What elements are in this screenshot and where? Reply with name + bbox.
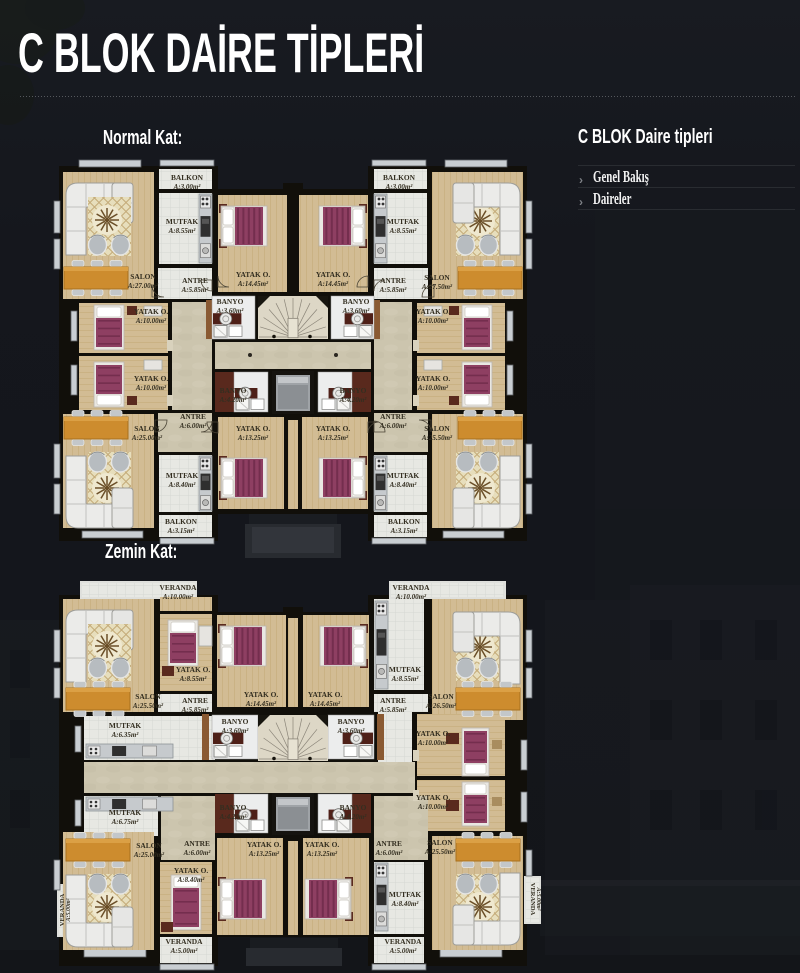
svg-text:A:6.00m²: A:6.00m² (179, 422, 208, 430)
svg-text:A:6.00m²: A:6.00m² (379, 422, 408, 430)
svg-text:MUTFAK: MUTFAK (389, 890, 422, 899)
svg-text:A:3.00m²: A:3.00m² (173, 183, 202, 191)
svg-text:A:3.00m²: A:3.00m² (385, 183, 414, 191)
svg-text:MUTFAK: MUTFAK (389, 665, 422, 674)
svg-text:A:14.45m²: A:14.45m² (237, 280, 269, 288)
svg-text:BANYO: BANYO (340, 386, 367, 395)
svg-text:A:25.00m²: A:25.00m² (131, 434, 163, 442)
svg-text:A:6.35m²: A:6.35m² (111, 731, 140, 739)
svg-text:A:8.55m²: A:8.55m² (168, 227, 197, 235)
svg-text:A:4.20m²: A:4.20m² (339, 396, 368, 404)
svg-text:A:26.50m²: A:26.50m² (425, 702, 457, 710)
svg-text:YATAK O.: YATAK O. (176, 665, 211, 674)
svg-text:A:5.85m²: A:5.85m² (379, 286, 408, 294)
svg-text:YATAK O.: YATAK O. (416, 793, 451, 802)
svg-text:A:5.85m²: A:5.85m² (181, 706, 210, 714)
svg-text:A:6.00m²: A:6.00m² (183, 849, 212, 857)
svg-text:YATAK O.: YATAK O. (416, 307, 451, 316)
svg-text:A:3.15m²: A:3.15m² (167, 527, 196, 535)
svg-text:A:10.00m²: A:10.00m² (417, 803, 449, 811)
svg-text:YATAK O.: YATAK O. (416, 374, 451, 383)
svg-text:A:3.60m²: A:3.60m² (342, 307, 371, 315)
svg-text:BANYO: BANYO (220, 803, 247, 812)
svg-text:A:27.50m²: A:27.50m² (421, 283, 453, 291)
svg-text:BANYO: BANYO (343, 297, 370, 306)
svg-text:A:8.55m²: A:8.55m² (391, 675, 420, 683)
svg-text:SALON: SALON (134, 424, 160, 433)
svg-text:VERANDA: VERANDA (385, 937, 423, 946)
svg-text:A:4.20m²: A:4.20m² (219, 396, 248, 404)
svg-text:BANYO: BANYO (340, 803, 367, 812)
svg-text:SALON: SALON (130, 272, 156, 281)
svg-text:ANTRE: ANTRE (380, 696, 406, 705)
svg-text:BANYO: BANYO (222, 717, 249, 726)
svg-text:A:10.00m²: A:10.00m² (135, 384, 167, 392)
svg-text:A:8.55m²: A:8.55m² (179, 675, 208, 683)
svg-text:A:13.25m²: A:13.25m² (306, 850, 338, 858)
svg-text:YATAK O.: YATAK O. (236, 270, 271, 279)
svg-text:SALON: SALON (427, 838, 453, 847)
svg-text:A:3.60m²: A:3.60m² (337, 727, 366, 735)
svg-text:YATAK O.: YATAK O. (305, 840, 340, 849)
svg-text:MUTFAK: MUTFAK (166, 471, 199, 480)
svg-text:A:5.00m²: A:5.00m² (389, 947, 418, 955)
svg-text:SALON: SALON (424, 273, 450, 282)
svg-text:A:8.40m²: A:8.40m² (389, 481, 418, 489)
svg-text:A:8.40m²: A:8.40m² (391, 900, 420, 908)
svg-text:ANTRE: ANTRE (182, 276, 208, 285)
svg-text:A:8.40m²: A:8.40m² (177, 876, 206, 884)
svg-text:ANTRE: ANTRE (380, 412, 406, 421)
svg-text:BALKON: BALKON (383, 173, 416, 182)
svg-text:A:5.00m²: A:5.00m² (170, 947, 199, 955)
svg-text:A:10.00m²: A:10.00m² (395, 593, 427, 601)
svg-text:MUTFAK: MUTFAK (166, 217, 199, 226)
svg-text:VERANDA: VERANDA (160, 583, 198, 592)
svg-text:A:10.00m²: A:10.00m² (417, 739, 449, 747)
svg-text:A:8.40m²: A:8.40m² (168, 481, 197, 489)
svg-text:ANTRE: ANTRE (182, 696, 208, 705)
svg-text:YATAK O.: YATAK O. (134, 307, 169, 316)
svg-text:A:10.00m²: A:10.00m² (417, 384, 449, 392)
svg-text:YATAK O.: YATAK O. (134, 374, 169, 383)
svg-text:VERANDA: VERANDA (393, 583, 431, 592)
svg-text:A:5.85m²: A:5.85m² (379, 706, 408, 714)
svg-text:A:13.25m²: A:13.25m² (248, 850, 280, 858)
svg-text:YATAK O.: YATAK O. (174, 866, 209, 875)
svg-text:A:10.00m²: A:10.00m² (417, 317, 449, 325)
svg-text:MUTFAK: MUTFAK (109, 808, 142, 817)
svg-text:SALON: SALON (428, 692, 454, 701)
svg-text:A:13.25m²: A:13.25m² (237, 434, 269, 442)
svg-text:VERANDA: VERANDA (529, 883, 536, 916)
svg-text:VERANDA: VERANDA (59, 893, 66, 926)
svg-text:A:6.75m²: A:6.75m² (111, 818, 140, 826)
svg-text:VERANDA: VERANDA (166, 937, 204, 946)
svg-text:YATAK O.: YATAK O. (416, 729, 451, 738)
svg-text:SALON: SALON (424, 424, 450, 433)
svg-text:YATAK O.: YATAK O. (308, 690, 343, 699)
svg-text:A:4.20m²: A:4.20m² (339, 813, 368, 821)
svg-text:BALKON: BALKON (171, 173, 204, 182)
svg-text:A:5.00m²: A:5.00m² (535, 887, 541, 911)
svg-text:YATAK O.: YATAK O. (316, 270, 351, 279)
svg-text:A:8.55m²: A:8.55m² (389, 227, 418, 235)
svg-text:ANTRE: ANTRE (380, 276, 406, 285)
svg-text:A:5.85m²: A:5.85m² (181, 286, 210, 294)
svg-text:BALKON: BALKON (388, 517, 421, 526)
svg-text:A:25.50m²: A:25.50m² (421, 434, 453, 442)
svg-text:A:3.60m²: A:3.60m² (221, 727, 250, 735)
svg-text:SALON: SALON (136, 841, 162, 850)
svg-text:BANYO: BANYO (338, 717, 365, 726)
svg-text:ANTRE: ANTRE (180, 412, 206, 421)
svg-text:A:6.00m²: A:6.00m² (375, 849, 404, 857)
svg-text:A:27.00m²: A:27.00m² (127, 282, 159, 290)
svg-text:A:14.45m²: A:14.45m² (245, 700, 277, 708)
svg-text:MUTFAK: MUTFAK (109, 721, 142, 730)
svg-text:BANYO: BANYO (217, 297, 244, 306)
svg-text:MUTFAK: MUTFAK (387, 471, 420, 480)
svg-text:YATAK O.: YATAK O. (247, 840, 282, 849)
svg-text:A:5.00m²: A:5.00m² (66, 898, 72, 922)
svg-text:BANYO: BANYO (220, 386, 247, 395)
svg-text:A:4.20m²: A:4.20m² (219, 813, 248, 821)
svg-text:ANTRE: ANTRE (376, 839, 402, 848)
svg-text:YATAK O.: YATAK O. (316, 424, 351, 433)
svg-text:A:14.45m²: A:14.45m² (309, 700, 341, 708)
svg-text:A:14.45m²: A:14.45m² (317, 280, 349, 288)
svg-text:YATAK O.: YATAK O. (244, 690, 279, 699)
svg-text:SALON: SALON (135, 692, 161, 701)
svg-text:YATAK O.: YATAK O. (236, 424, 271, 433)
svg-text:BALKON: BALKON (165, 517, 198, 526)
svg-text:A:3.60m²: A:3.60m² (216, 307, 245, 315)
svg-text:A:10.00m²: A:10.00m² (162, 593, 194, 601)
svg-text:A:25.50m²: A:25.50m² (132, 702, 164, 710)
svg-text:A:3.15m²: A:3.15m² (390, 527, 419, 535)
svg-text:A:10.00m²: A:10.00m² (135, 317, 167, 325)
svg-text:A:25.50m²: A:25.50m² (424, 848, 456, 856)
svg-text:ANTRE: ANTRE (184, 839, 210, 848)
svg-text:A:25.00m²: A:25.00m² (133, 851, 165, 859)
svg-text:MUTFAK: MUTFAK (387, 217, 420, 226)
svg-text:A:13.25m²: A:13.25m² (317, 434, 349, 442)
